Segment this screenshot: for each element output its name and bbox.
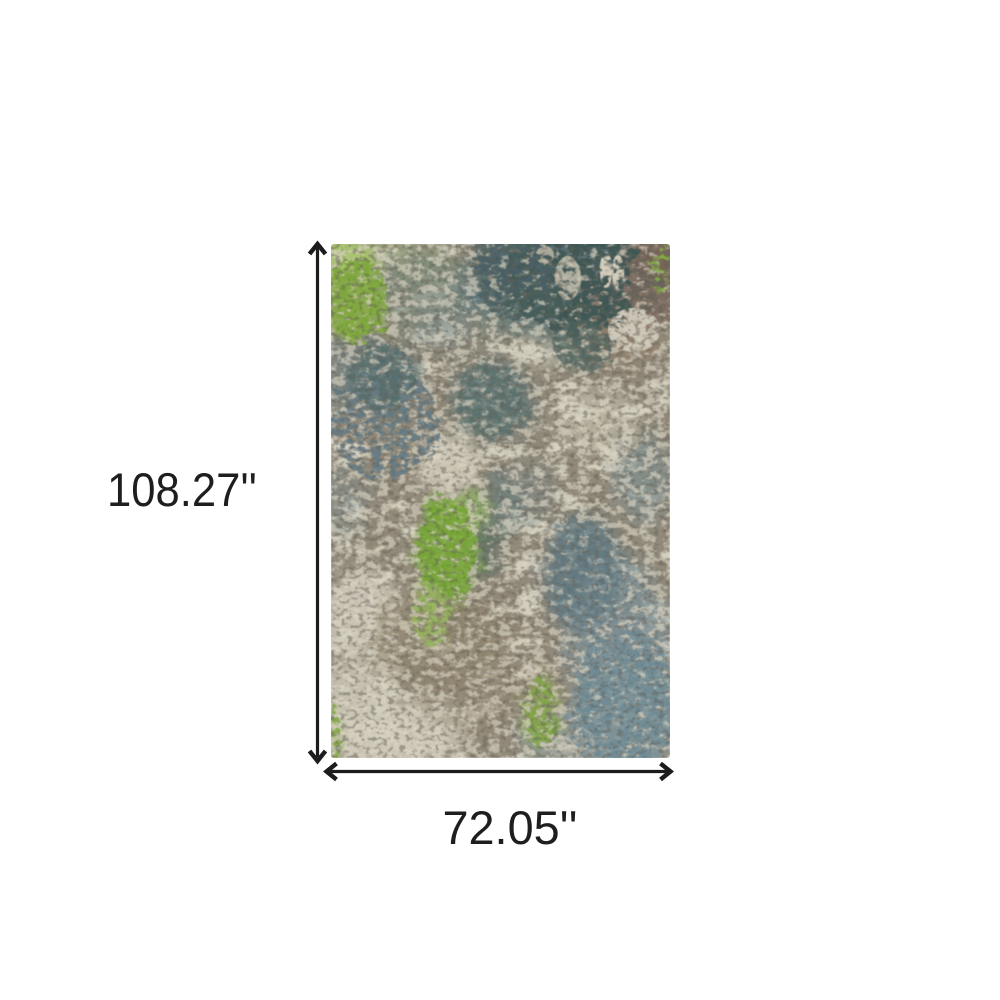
svg-text:108.27'': 108.27'' [107,463,257,516]
svg-text:72.05'': 72.05'' [443,801,578,854]
